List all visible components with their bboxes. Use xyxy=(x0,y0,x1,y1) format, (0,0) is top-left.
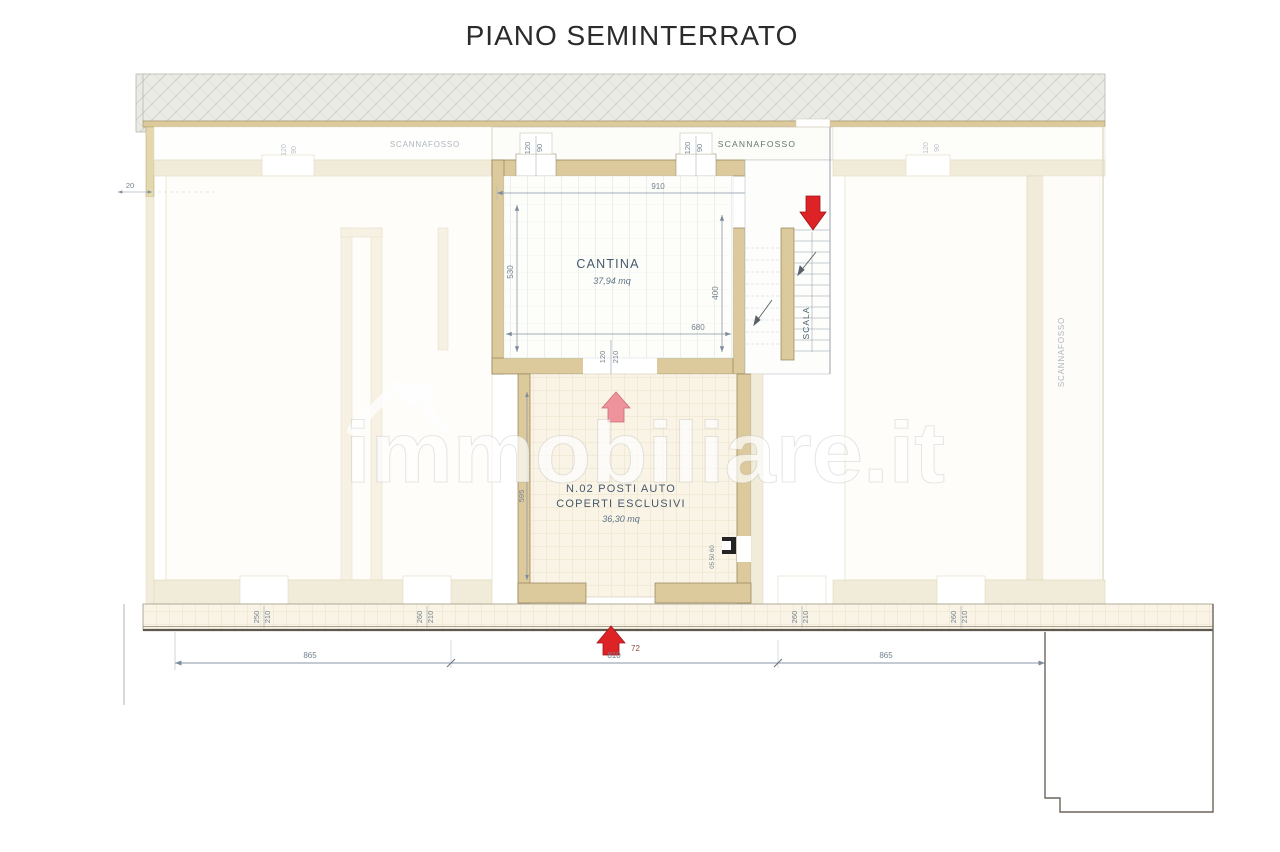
dim-door-w: 120 xyxy=(598,351,607,364)
hatched-wall-band xyxy=(136,74,1105,132)
boundary-wall xyxy=(143,121,1105,127)
scannafosso-label: SCANNAFOSSO xyxy=(718,139,796,149)
dim-window-left-w: 120 xyxy=(523,142,532,155)
dim-pair4-a: 260 xyxy=(949,611,958,624)
dim-cantina-height: 530 xyxy=(506,265,515,279)
dim-cantina-width: 680 xyxy=(691,323,705,332)
dim-window-right-w: 120 xyxy=(683,142,692,155)
left-outer-wall xyxy=(146,127,154,605)
ghost-window xyxy=(262,155,314,176)
stair-stringer-wall xyxy=(781,228,794,360)
dim-total-right: 865 xyxy=(879,651,893,660)
ghost-window xyxy=(906,155,950,176)
dim-window-right-h: 90 xyxy=(695,144,704,152)
dim-pair3-b: 210 xyxy=(801,611,810,624)
watermark-text: immobiliare.it xyxy=(345,405,945,501)
dim-pair4-b: 210 xyxy=(960,611,969,624)
scala-label: SCALA xyxy=(801,307,811,340)
dim-total-left: 865 xyxy=(303,651,317,660)
dim-stair-height: 400 xyxy=(711,286,720,300)
staircase: SCALA xyxy=(745,127,830,374)
dim-pair2-a: 260 xyxy=(415,611,424,624)
dim-ghost-window-w: 120 xyxy=(281,144,288,156)
floor-plan-drawing: PIANO SEMINTERRATO SCANNAFOSSO 120 90 SC… xyxy=(0,0,1280,852)
scannafosso-label-left: SCANNAFOSSO xyxy=(390,140,460,149)
dim-top-width: 910 xyxy=(651,182,665,191)
ghost-unit-left: SCANNAFOSSO 120 90 xyxy=(154,127,492,604)
dim-pair1-b: 210 xyxy=(263,611,272,624)
dim-ghost-window-right-w: 120 xyxy=(923,142,930,154)
cantina-left-wall xyxy=(492,160,504,374)
dim-ghost-window-right-h: 90 xyxy=(934,144,941,152)
scannafosso-label-right: SCANNAFOSSO xyxy=(1057,317,1066,387)
floor-plan-page: PIANO SEMINTERRATO SCANNAFOSSO 120 90 SC… xyxy=(0,0,1280,852)
dim-side-door: 05 50 60 xyxy=(710,545,716,569)
cantina-area: 37,94 mq xyxy=(593,276,631,286)
dim-total-mid: 810 xyxy=(607,651,621,660)
dim-pair1-a: 250 xyxy=(252,611,261,624)
page-title: PIANO SEMINTERRATO xyxy=(466,20,799,51)
dim-entry-width: 72 xyxy=(631,644,640,653)
garage-side-door-opening xyxy=(737,536,751,562)
garage-area: 36,30 mq xyxy=(602,514,640,524)
cantina-label: CANTINA xyxy=(576,257,639,271)
dim-ghost-window-h: 90 xyxy=(291,146,298,154)
dim-window-left-h: 90 xyxy=(535,144,544,152)
dim-pair2-b: 210 xyxy=(426,611,435,624)
dim-pair3-a: 260 xyxy=(790,611,799,624)
dim-door-h: 210 xyxy=(611,351,620,364)
cantina-right-wall xyxy=(733,228,745,374)
dim-offset-left: 20 xyxy=(126,181,134,190)
